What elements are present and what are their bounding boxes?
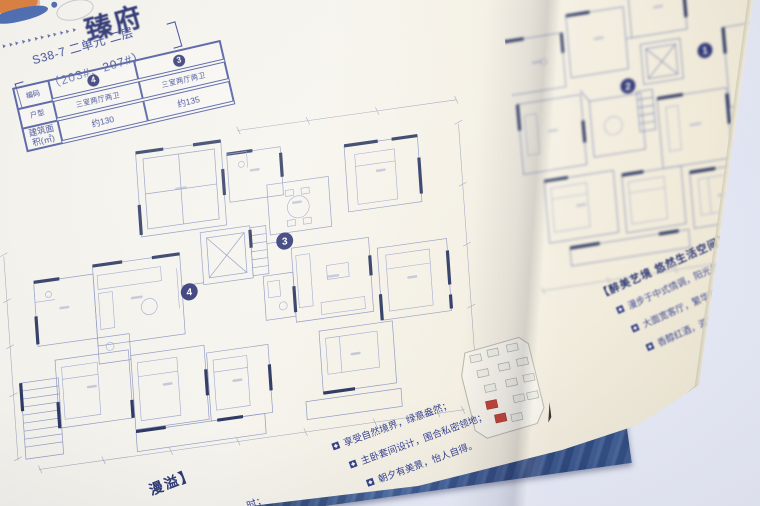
subtitle-bracket-right: [167, 21, 183, 48]
svg-text:3: 3: [282, 236, 289, 248]
unit4-badge: 4: [86, 73, 100, 87]
bullet-icon: [645, 342, 654, 351]
plan-badge-unit2: 2: [620, 77, 636, 94]
svg-text:4: 4: [186, 287, 193, 299]
unit3-badge: 3: [172, 53, 186, 67]
logo-blue-dot: [51, 1, 58, 8]
photo-of-brochure-spread: 臻府 S38-7 二单元 二层 （203#、207#） 编码 4 3 户型 三室…: [0, 0, 760, 506]
bullet-icon: [616, 305, 625, 314]
bullet-icon: [366, 477, 375, 486]
plan-badge-unit1: 1: [697, 42, 713, 59]
section-heading-fragment: 漫溢】: [146, 464, 198, 500]
plan-badge-unit3: 3: [276, 231, 294, 250]
bullet-icon: [348, 459, 357, 468]
body-text-fragment: 时；: [244, 491, 268, 506]
bullet-icon: [331, 441, 340, 450]
bullet-icon: [631, 323, 640, 332]
